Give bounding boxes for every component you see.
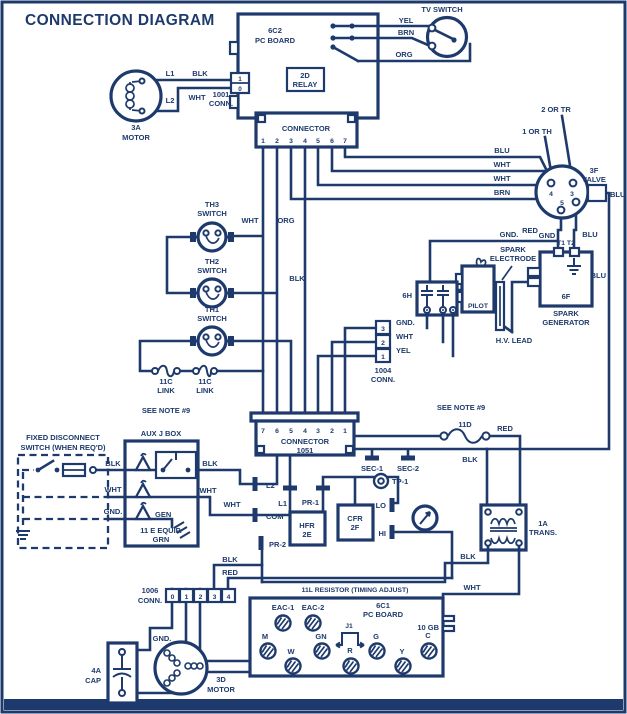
wire-label-yel: YEL bbox=[399, 16, 414, 25]
disconnect-label2: SWITCH (WHEN REQ'D) bbox=[20, 443, 106, 452]
connector-1051-pin: 2 bbox=[330, 428, 334, 435]
disconnect-switch-blade bbox=[40, 461, 53, 469]
th1-label2: SWITCH bbox=[197, 314, 227, 323]
wire-label-brn: BRN bbox=[398, 28, 414, 37]
connector-1051-pin: 1 bbox=[343, 428, 347, 435]
connector-top-pin: 2 bbox=[275, 138, 279, 145]
terminal-m-label: M bbox=[262, 632, 268, 641]
th2-label1: TH2 bbox=[205, 257, 219, 266]
wire-label-wht5: WHT bbox=[241, 216, 258, 225]
wire-label-blk4: BLK bbox=[202, 459, 218, 468]
conn-1006-pin: 2 bbox=[199, 594, 203, 601]
wiring-diagram-canvas: CONNECTION DIAGRAM bbox=[0, 0, 627, 714]
wire-nut-1 bbox=[136, 454, 150, 470]
sec2-label: SEC-2 bbox=[397, 464, 419, 473]
label-l1: L1 bbox=[166, 69, 175, 78]
wire-label-red3: RED bbox=[222, 568, 238, 577]
aux-gen-label: GEN bbox=[155, 510, 171, 519]
spark-electrode-label1: SPARK bbox=[500, 245, 526, 254]
valve-pin3-label: 3 bbox=[570, 191, 574, 198]
cfr-label2: 2F bbox=[351, 523, 360, 532]
connector-1051-label1: CONNECTOR bbox=[281, 437, 330, 446]
sec1-label: SEC-1 bbox=[361, 464, 383, 473]
wire-label-wht2: WHT bbox=[493, 160, 510, 169]
terminal-y-label: Y bbox=[399, 647, 404, 656]
conn-1001-pin0: 0 bbox=[238, 86, 242, 93]
valve-pin-aux bbox=[573, 199, 580, 206]
wire-label-org2: ORG bbox=[277, 216, 294, 225]
terminal-w-label: W bbox=[287, 647, 295, 656]
th3-label1: TH3 bbox=[205, 200, 219, 209]
wire-nut-3 bbox=[136, 503, 150, 519]
terminal-m bbox=[261, 644, 276, 659]
see-note-left: SEE NOTE #9 bbox=[142, 406, 190, 415]
aux-equip-label: 11 E EQUIP. bbox=[140, 526, 182, 535]
label-l2: L2 bbox=[166, 96, 175, 105]
wire-label-gnd4: GND. bbox=[104, 507, 123, 516]
connector-top-pin: 4 bbox=[303, 138, 307, 145]
spark-gen-hv-tab2 bbox=[528, 278, 540, 286]
aux-j-box-label: AUX J BOX bbox=[141, 429, 181, 438]
fuse-link-11d bbox=[440, 429, 489, 443]
terminal-c bbox=[422, 644, 437, 659]
disconnect-label1: FIXED DISCONNECT bbox=[26, 433, 100, 442]
wire-label-org: ORG bbox=[395, 50, 412, 59]
pr-1-terminal bbox=[316, 486, 330, 491]
spark-gen-terminal-t1 bbox=[554, 248, 563, 256]
th2-switch bbox=[190, 279, 234, 307]
tv-switch-terminal-2 bbox=[429, 43, 436, 50]
link-11c-label2b: LINK bbox=[196, 386, 214, 395]
wire-label-gnd2: GND. bbox=[500, 230, 519, 239]
capacitor-6h-terminals bbox=[424, 307, 456, 313]
motor-3a-terminal-l2 bbox=[140, 109, 145, 114]
terminal-g bbox=[370, 644, 385, 659]
th3-switch bbox=[190, 223, 234, 251]
transformer-1a-internals bbox=[485, 509, 522, 546]
pcb-6c2-label2: PC BOARD bbox=[255, 36, 296, 45]
aux-switch-dot2 bbox=[186, 468, 191, 473]
pcb-6c1-label2: PC BOARD bbox=[363, 610, 404, 619]
conn-1006-pin: 3 bbox=[213, 594, 217, 601]
wire-label-wht1: WHT bbox=[188, 93, 205, 102]
valve-pin-4 bbox=[548, 180, 555, 187]
wire-label-blk3: BLK bbox=[105, 459, 121, 468]
terminal-eac1-label: EAC-1 bbox=[272, 603, 295, 612]
wire-nut-2 bbox=[136, 481, 150, 497]
valve-blu-tab-label: BLU bbox=[610, 190, 625, 199]
motor-3a-coil-loop bbox=[126, 100, 134, 108]
spark-gen-hv-tab1 bbox=[528, 268, 540, 276]
com-terminal bbox=[253, 508, 258, 522]
connector-top-pin: 6 bbox=[330, 138, 334, 145]
terminal-eac-1 bbox=[276, 616, 291, 631]
connector-1051-pin: 7 bbox=[261, 428, 265, 435]
connector-1051-pin: 3 bbox=[316, 428, 320, 435]
transformer-label2: TRANS. bbox=[529, 528, 557, 537]
bottom-bar bbox=[4, 699, 623, 710]
th3-label2: SWITCH bbox=[197, 209, 227, 218]
connection-diagram-page: CONNECTION DIAGRAM bbox=[0, 0, 627, 714]
connector-1051-pin: 4 bbox=[303, 428, 307, 435]
conn-1001-label2: CONN. bbox=[209, 99, 233, 108]
conn-1004-label1: 1004 bbox=[375, 366, 393, 375]
wire-label-wht7: WHT bbox=[199, 486, 216, 495]
conn-1004-pin3: 3 bbox=[381, 326, 385, 333]
valve-label1: 3F bbox=[590, 166, 599, 175]
wire-label-yel2: YEL bbox=[396, 346, 411, 355]
wire-label-blk7: BLK bbox=[222, 555, 238, 564]
l2-terminal bbox=[253, 477, 258, 491]
conn-1001-label1: 1001 bbox=[213, 90, 230, 99]
spark-gen-6f-label: 6F bbox=[562, 292, 571, 301]
wire-label-gnd1: GND bbox=[539, 231, 556, 240]
wire-label-blk5: BLK bbox=[462, 455, 478, 464]
motor-3a-terminal-l1 bbox=[140, 79, 145, 84]
conn-1006-pin: 0 bbox=[171, 594, 175, 601]
com-terminal-label: COM bbox=[266, 512, 284, 521]
connector-top-tab-l bbox=[258, 115, 265, 122]
connector-top-pin: 5 bbox=[316, 138, 320, 145]
wire-label-brn2: BRN bbox=[494, 188, 510, 197]
capacitor-4a-label2: CAP bbox=[85, 676, 101, 685]
wire-label-red1: RED bbox=[522, 226, 538, 235]
j1-label: J1 bbox=[345, 623, 353, 630]
wire-label-blu1: BLU bbox=[494, 146, 509, 155]
pcb-6c1-edge-finger2 bbox=[443, 626, 454, 631]
relay-2d-label2: RELAY bbox=[293, 80, 318, 89]
conn-1006-label1: 1006 bbox=[142, 586, 159, 595]
wire-label-blu2: BLU bbox=[582, 230, 597, 239]
pcb-6c2-label1: 6C2 bbox=[268, 26, 282, 35]
connector-1051-pin: 6 bbox=[275, 428, 279, 435]
capacitor-4a-label1: 4A bbox=[91, 666, 101, 675]
terminal-gn-label: GN bbox=[315, 632, 326, 641]
conn-1004-pin1: 1 bbox=[381, 354, 385, 361]
hfr-label2: 2E bbox=[302, 530, 311, 539]
sec-2-terminal bbox=[401, 456, 415, 461]
wire-label-red2: RED bbox=[497, 424, 513, 433]
valve-th-label: 1 OR TH bbox=[522, 127, 552, 136]
lo-terminal-label: LO bbox=[376, 501, 387, 510]
lo-terminal bbox=[390, 498, 395, 512]
pr1-terminal-label: PR-1 bbox=[302, 498, 319, 507]
pcb-6c1-label1: 6C1 bbox=[376, 601, 390, 610]
motor-3a-coil-loop bbox=[126, 92, 134, 100]
motor-3d-label2: MOTOR bbox=[207, 685, 235, 694]
aux-grn-label: GRN bbox=[153, 535, 170, 544]
wire-label-wht6: WHT bbox=[104, 485, 121, 494]
terminal-gn bbox=[315, 644, 330, 659]
tp-1-jack-center bbox=[378, 478, 384, 484]
spark-gen-label2: GENERATOR bbox=[542, 318, 590, 327]
fuse-link-11c-2 bbox=[193, 366, 217, 377]
conn-1006-pin: 1 bbox=[185, 594, 189, 601]
link-11c-label1b: LINK bbox=[157, 386, 175, 395]
cfr-label1: CFR bbox=[347, 514, 363, 523]
terminal-eac-2 bbox=[306, 616, 321, 631]
fuse-link-11c-1 bbox=[152, 366, 180, 377]
terminal-g-label: G bbox=[373, 632, 379, 641]
spark-electrode-label2: ELECTRODE bbox=[490, 254, 536, 263]
pcb-6c2-outline bbox=[238, 14, 378, 118]
wire-label-blk2: BLK bbox=[289, 274, 305, 283]
wire-label-blk1: BLK bbox=[192, 69, 208, 78]
wire-label-wht9: WHT bbox=[463, 583, 480, 592]
wires-th-left-link bbox=[167, 237, 192, 293]
motor-3a-label1: 3A bbox=[131, 123, 141, 132]
spark-gen-label1: SPARK bbox=[553, 309, 579, 318]
hfr-label1: HFR bbox=[299, 521, 315, 530]
hi-terminal-label: HI bbox=[379, 529, 387, 538]
motor-3a-label2: MOTOR bbox=[122, 133, 150, 142]
disconnect-terminal bbox=[90, 467, 96, 473]
conn-1001-pin1: 1 bbox=[238, 76, 242, 83]
motor-3a-body bbox=[111, 71, 161, 121]
spark-gen-terminal-t2 bbox=[570, 248, 579, 256]
pr-2-terminal bbox=[259, 536, 264, 550]
wire-label-wht3: WHT bbox=[493, 174, 510, 183]
link-11c-label2a: 11C bbox=[198, 377, 212, 386]
th1-label1: TH1 bbox=[205, 305, 219, 314]
connector-1051-tab-l bbox=[257, 446, 264, 453]
wire-label-gnd5: GND. bbox=[153, 634, 172, 643]
valve-pin-5 bbox=[558, 207, 565, 214]
page-title: CONNECTION DIAGRAM bbox=[25, 12, 215, 29]
wire-label-blu3: BLU bbox=[591, 271, 606, 280]
sec-1-terminal bbox=[365, 456, 379, 461]
valve-blu-tab bbox=[588, 185, 606, 201]
disconnect-contact-dot2 bbox=[55, 468, 60, 473]
terminal-r-label: R bbox=[347, 646, 353, 655]
connector-top-pin: 1 bbox=[261, 138, 265, 145]
spark-gen-t1t2-label: T1 T2 bbox=[557, 240, 575, 247]
connector-1051-tab-r bbox=[346, 446, 353, 453]
tp1-label: TP-1 bbox=[392, 477, 408, 486]
hv-lead-label: H.V. LEAD bbox=[496, 336, 533, 345]
pilot-label: PILOT bbox=[468, 303, 489, 310]
pr2-terminal-label: PR-2 bbox=[269, 540, 286, 549]
l1-terminal-label: L1 bbox=[278, 499, 287, 508]
wires-disconnect-dashed bbox=[22, 470, 108, 528]
see-note-right: SEE NOTE #9 bbox=[437, 403, 485, 412]
valve-tr-label: 2 OR TR bbox=[541, 105, 571, 114]
l1-terminal bbox=[283, 486, 297, 491]
connector-1051-pin: 5 bbox=[289, 428, 293, 435]
terminal-c-label: C bbox=[425, 631, 431, 640]
motor-3a-coil-loop bbox=[126, 84, 134, 92]
wire-label-wht8: WHT bbox=[223, 500, 240, 509]
spark-electrode-leader bbox=[502, 266, 512, 280]
terminal-y bbox=[396, 659, 411, 674]
link-11c-label1a: 11C bbox=[159, 377, 173, 386]
wire-label-wht4: WHT bbox=[396, 332, 413, 341]
valve-pin5-label: 5 bbox=[560, 200, 564, 207]
terminal-r bbox=[344, 659, 359, 674]
capacitor-6h-label: 6H bbox=[402, 291, 412, 300]
relay-2d-label1: 2D bbox=[300, 71, 310, 80]
motor-3d-label1: 3D bbox=[216, 675, 226, 684]
connector-top-pin: 7 bbox=[343, 138, 347, 145]
terminal-w bbox=[286, 659, 301, 674]
th1-switch bbox=[190, 327, 234, 355]
pcb-6c2-tab-top bbox=[230, 42, 238, 54]
connector-top-tab-r bbox=[348, 115, 355, 122]
wire-label-gnd3: GND. bbox=[396, 318, 415, 327]
hi-terminal bbox=[390, 525, 395, 539]
pcb-6c1-edge-finger1 bbox=[443, 616, 454, 621]
th2-label2: SWITCH bbox=[197, 266, 227, 275]
valve-label2: VALVE bbox=[582, 175, 606, 184]
tv-switch-contact bbox=[451, 37, 456, 42]
tv-switch-label: TV SWITCH bbox=[421, 5, 462, 14]
conn-1004-label2: CONN. bbox=[371, 375, 395, 384]
valve-pin-3 bbox=[570, 180, 577, 187]
connector-1051-label2: 1051 bbox=[297, 446, 314, 455]
conn-1004-pin2: 2 bbox=[381, 340, 385, 347]
conn-1006-label2: CONN. bbox=[138, 596, 162, 605]
connector-top-label: CONNECTOR bbox=[282, 124, 331, 133]
relay-contact-dots bbox=[330, 23, 354, 49]
transformer-label1: 1A bbox=[538, 519, 548, 528]
valve-pin4-label: 4 bbox=[549, 191, 553, 198]
terminal-eac2-label: EAC-2 bbox=[302, 603, 325, 612]
connector-top-pin: 3 bbox=[289, 138, 293, 145]
wire-label-blk6: BLK bbox=[460, 552, 476, 561]
l2-terminal-label: L2 bbox=[266, 481, 275, 490]
resistor-11l-label: 11L RESISTOR (TIMING ADJUST) bbox=[302, 587, 409, 594]
conn-1006-pin: 4 bbox=[227, 594, 231, 601]
fuse-11d-label: 11D bbox=[458, 420, 472, 429]
